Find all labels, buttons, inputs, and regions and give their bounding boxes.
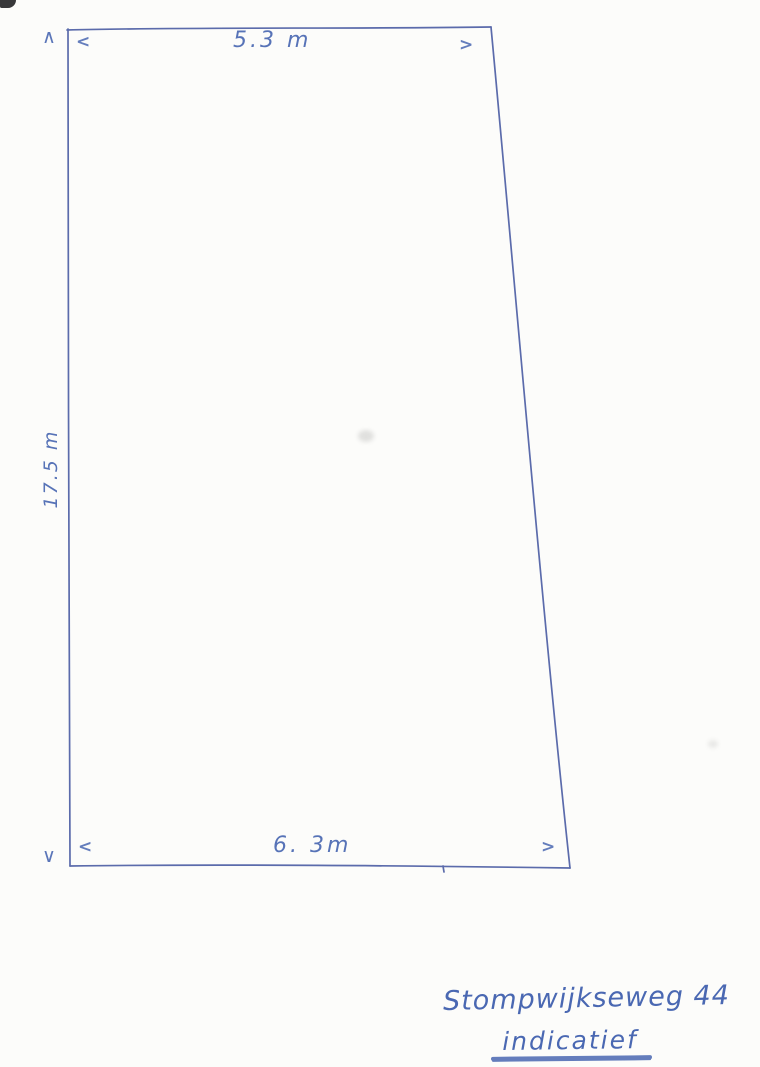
dimension-label-bottom: 6. 3m	[273, 833, 351, 858]
caption-note: indicatief	[445, 1024, 695, 1056]
dimension-label-top: 5.3 m	[233, 28, 311, 53]
arrow-down-icon: ∨	[42, 845, 56, 867]
paper-smudge	[708, 740, 718, 748]
parcel-edge-left	[68, 29, 70, 866]
parcel-outline	[0, 0, 760, 1067]
arrow-up-icon: ∧	[42, 26, 56, 48]
paper-smudge	[358, 430, 374, 442]
caption-address: Stompwijkseweg 44	[443, 980, 730, 1017]
pen-tick	[443, 866, 444, 872]
dimension-arrow-right-top-icon: >	[459, 35, 473, 55]
parcel-edge-right	[491, 27, 570, 868]
dimension-arrow-left-bottom-icon: <	[78, 837, 92, 857]
dimension-label-left: 17.5 m	[40, 420, 62, 518]
dimension-arrow-right-bottom-icon: >	[541, 837, 555, 857]
dimension-arrow-left-top-icon: <	[76, 32, 90, 52]
scanned-sketch-page: ∧ ∨ < 5.3 m > < 6. 3m > 17.5 m Stompwijk…	[0, 0, 760, 1067]
parcel-edge-bottom	[70, 865, 570, 868]
